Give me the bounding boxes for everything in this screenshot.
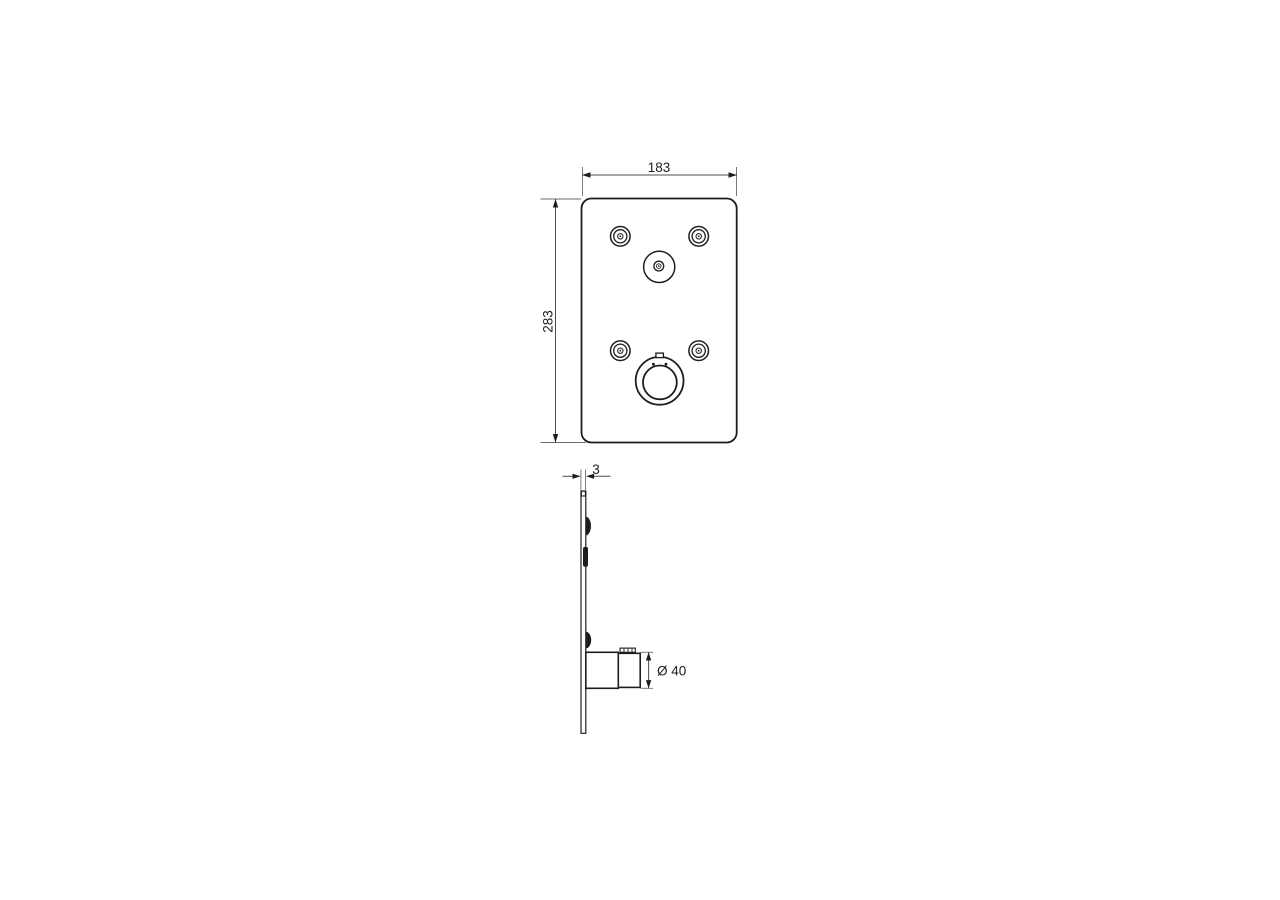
dimension-width: 183: [582, 160, 737, 196]
front-view: [582, 199, 737, 443]
plate-top-detail: [581, 491, 585, 496]
knob-profile: [586, 648, 640, 688]
knob-marker-right: [665, 363, 668, 366]
dimension-knob-diameter: Ø 40: [641, 652, 687, 688]
knob-cap: [618, 653, 640, 687]
dim-thickness-label: 3: [592, 462, 600, 477]
center-valve-button: [644, 251, 675, 282]
button-top-right: [689, 227, 709, 247]
button-mid-left: [611, 341, 631, 361]
button-mid-right: [689, 341, 709, 361]
button-top-left: [611, 227, 631, 247]
dim-height-label: 283: [541, 310, 556, 333]
knob-marker-left: [652, 363, 655, 366]
knob-top-tab: [656, 353, 664, 358]
drawing-canvas: 183 283: [0, 0, 1280, 900]
side-view: [581, 491, 640, 733]
technical-drawing: 183 283: [0, 0, 1280, 900]
button-bulge-mid: [586, 632, 592, 649]
plate-profile: [581, 491, 586, 733]
knob-sleeve: [586, 652, 619, 688]
dim-knob-diameter-label: Ø 40: [657, 664, 686, 679]
dim-width-label: 183: [648, 160, 671, 175]
button-bulge-top: [586, 517, 591, 536]
knob-grip-serration: [620, 648, 635, 652]
dimension-height: 283: [541, 199, 587, 443]
valve-bulge-center: [583, 547, 588, 567]
dimension-thickness: 3: [563, 462, 611, 491]
faceplate-outline: [582, 199, 737, 443]
